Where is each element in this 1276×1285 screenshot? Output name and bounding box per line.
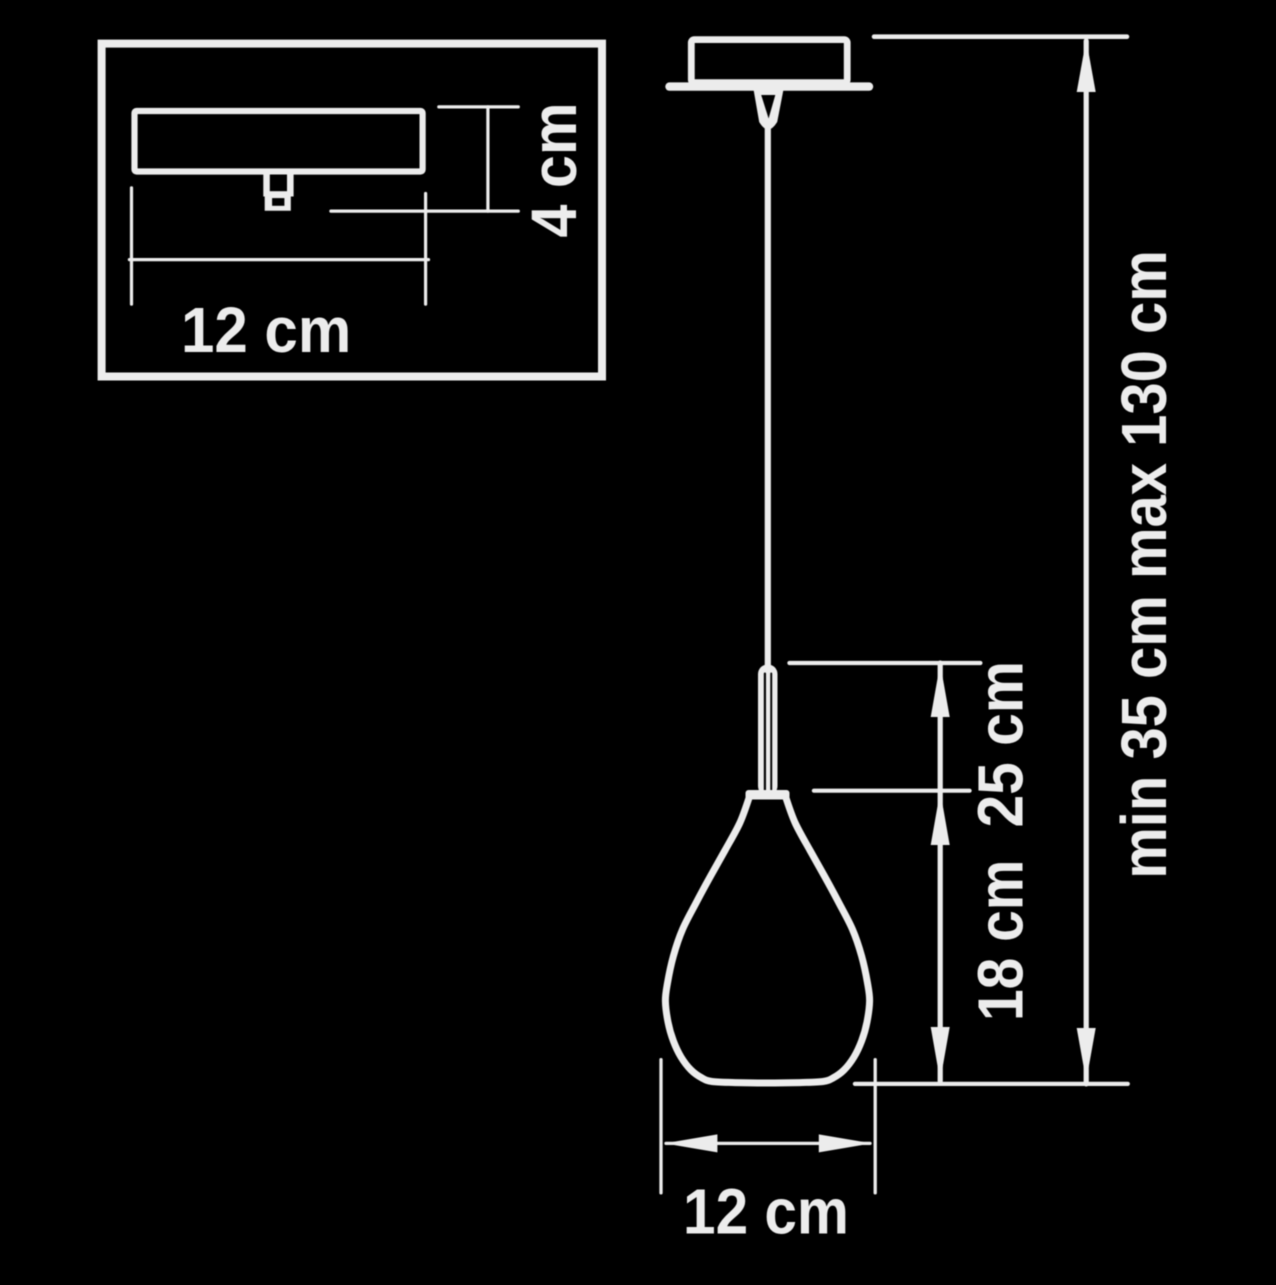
svg-text:18 cm: 18 cm	[964, 860, 1036, 1021]
svg-text:12 cm: 12 cm	[683, 1175, 849, 1247]
svg-text:25 cm: 25 cm	[964, 661, 1036, 828]
svg-text:4 cm: 4 cm	[518, 103, 590, 238]
svg-text:min 35 cm max 130 cm: min 35 cm max 130 cm	[1108, 250, 1180, 879]
svg-text:12 cm: 12 cm	[181, 294, 351, 366]
